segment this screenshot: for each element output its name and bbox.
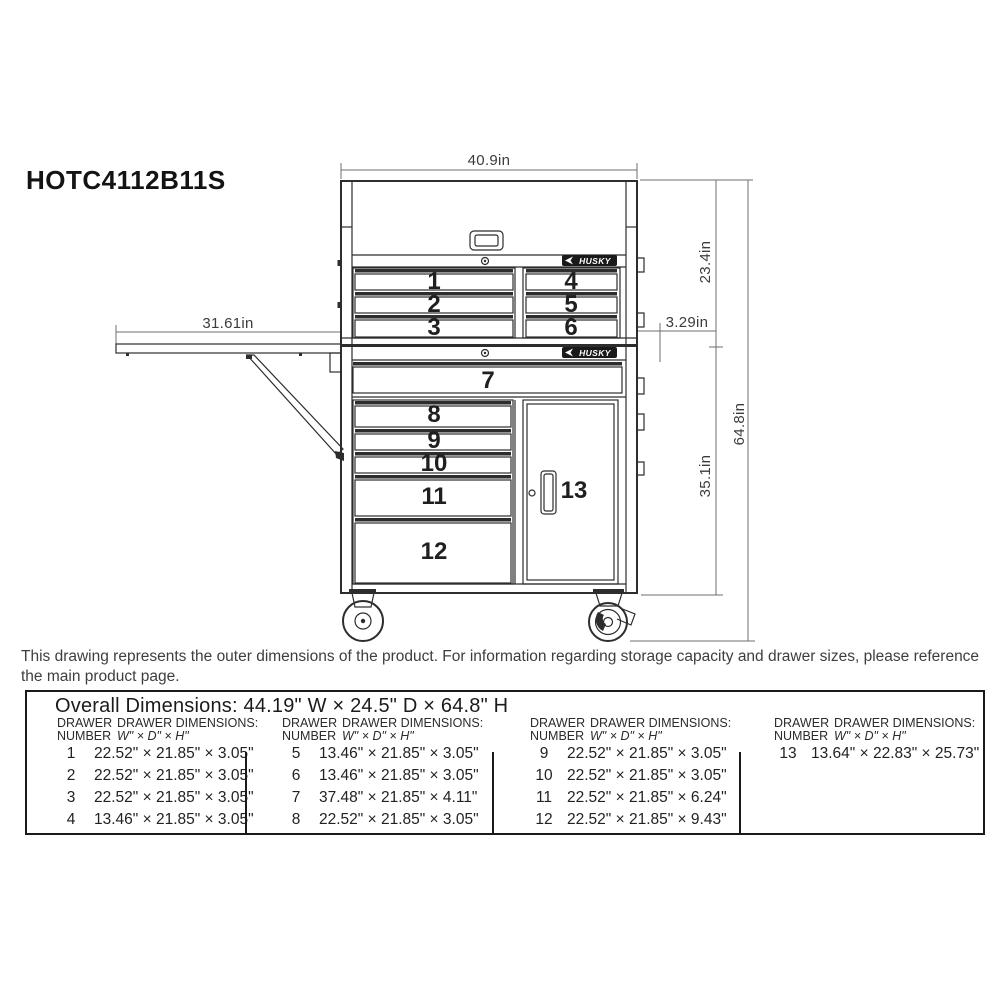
casters bbox=[343, 589, 635, 641]
drawer-number-cell: 12 bbox=[530, 811, 558, 829]
overall-dimensions: Overall Dimensions: 44.19" W × 24.5" D ×… bbox=[55, 695, 508, 718]
table-group-1: DRAWER NUMBER DRAWER DIMENSIONS: W" × D"… bbox=[57, 717, 258, 831]
header-number: NUMBER bbox=[282, 730, 342, 743]
drawer-label-13: 13 bbox=[561, 477, 588, 504]
technical-drawing: 40.9in 31.61in 23.4in 3.29in 35.1in 6 bbox=[0, 0, 1000, 1000]
drawer-dims-cell: 22.52" × 21.85" × 3.05" bbox=[319, 811, 479, 829]
drawer-number-cell: 1 bbox=[57, 745, 85, 763]
bottom-cabinet: HUSKY 7 8 9 10 11 12 bbox=[341, 346, 644, 593]
drawer-number-cell: 3 bbox=[57, 789, 85, 807]
husky-logo-text: HUSKY bbox=[579, 256, 612, 266]
dim-shelf-width: 31.61in bbox=[202, 315, 253, 332]
drawer-number-cell: 11 bbox=[530, 789, 558, 807]
husky-logo: HUSKY bbox=[562, 347, 617, 358]
product-dimension-sheet: HOTC4112B11S 40.9in 31.61in 23.4in 3.29i… bbox=[0, 0, 1000, 1000]
header-wdh: W" × D" × H" bbox=[342, 730, 483, 743]
dim-chest-height: 23.4in bbox=[697, 241, 714, 284]
dim-side-offset: 3.29in bbox=[666, 314, 709, 331]
table-header: DRAWER NUMBER DRAWER DIMENSIONS: W" × D"… bbox=[282, 717, 483, 743]
dimensions-table: Overall Dimensions: 44.19" W × 24.5" D ×… bbox=[25, 690, 985, 835]
lid-latch-handle bbox=[470, 231, 503, 250]
header-wdh: W" × D" × H" bbox=[834, 730, 975, 743]
drawer-number-cell: 10 bbox=[530, 767, 558, 785]
table-row: 222.52" × 21.85" × 3.05" bbox=[57, 765, 258, 787]
table-row: 613.46" × 21.85" × 3.05" bbox=[282, 765, 483, 787]
top-chest: HUSKY 1 2 3 4 5 6 bbox=[338, 181, 645, 345]
dim-chest-width: 40.9in bbox=[468, 152, 511, 169]
table-divider bbox=[492, 752, 494, 833]
drawer-dims-cell: 22.52" × 21.85" × 3.05" bbox=[567, 767, 727, 785]
dim-cabinet-height: 35.1in bbox=[697, 455, 714, 498]
drawer-label-11: 11 bbox=[421, 483, 446, 510]
table-row: 122.52" × 21.85" × 3.05" bbox=[57, 743, 258, 765]
table-divider bbox=[739, 752, 741, 833]
right-caster bbox=[589, 589, 635, 641]
table-header: DRAWER NUMBER DRAWER DIMENSIONS: W" × D"… bbox=[774, 717, 979, 743]
header-wdh: W" × D" × H" bbox=[590, 730, 731, 743]
drawer-dims-cell: 13.46" × 21.85" × 3.05" bbox=[94, 811, 254, 829]
table-row: 1222.52" × 21.85" × 9.43" bbox=[530, 809, 731, 831]
table-group-2: DRAWER NUMBER DRAWER DIMENSIONS: W" × D"… bbox=[282, 717, 483, 831]
table-divider bbox=[245, 752, 247, 833]
drawer-number-cell: 5 bbox=[282, 745, 310, 763]
disclaimer-note: This drawing represents the outer dimens… bbox=[21, 647, 989, 686]
side-shelf bbox=[116, 344, 344, 461]
left-caster bbox=[343, 589, 383, 641]
dim-overall-height: 64.8in bbox=[731, 403, 748, 446]
header-number: NUMBER bbox=[530, 730, 590, 743]
header-number: NUMBER bbox=[774, 730, 834, 743]
table-group-4: DRAWER NUMBER DRAWER DIMENSIONS: W" × D"… bbox=[774, 717, 979, 765]
drawer-number-cell: 9 bbox=[530, 745, 558, 763]
table-header: DRAWER NUMBER DRAWER DIMENSIONS: W" × D"… bbox=[57, 717, 258, 743]
drawer-number-cell: 7 bbox=[282, 789, 310, 807]
table-row: 822.52" × 21.85" × 3.05" bbox=[282, 809, 483, 831]
drawer-dims-cell: 22.52" × 21.85" × 3.05" bbox=[567, 745, 727, 763]
door-handle bbox=[541, 471, 556, 514]
keyhole-icon bbox=[529, 490, 535, 496]
husky-logo: HUSKY bbox=[562, 255, 617, 266]
side-handle-bracket bbox=[637, 378, 644, 394]
drawer-label-8: 8 bbox=[427, 401, 440, 428]
cabinet-door: 13 bbox=[523, 400, 618, 584]
side-handle-bracket bbox=[637, 414, 644, 430]
husky-logo-text: HUSKY bbox=[579, 348, 612, 358]
drawer-label-3: 3 bbox=[427, 314, 440, 341]
drawer-number-cell: 2 bbox=[57, 767, 85, 785]
side-handle-bracket bbox=[637, 313, 644, 327]
cabinet-lock-icon bbox=[482, 350, 489, 357]
table-row: 1122.52" × 21.85" × 6.24" bbox=[530, 787, 731, 809]
table-row: 322.52" × 21.85" × 3.05" bbox=[57, 787, 258, 809]
drawer-dims-cell: 22.52" × 21.85" × 3.05" bbox=[94, 789, 254, 807]
drawer-number-cell: 8 bbox=[282, 811, 310, 829]
chest-lock-icon bbox=[482, 258, 489, 265]
drawer-dims-cell: 13.46" × 21.85" × 3.05" bbox=[319, 767, 479, 785]
table-row: 413.46" × 21.85" × 3.05" bbox=[57, 809, 258, 831]
drawer-dims-cell: 37.48" × 21.85" × 4.11" bbox=[319, 789, 477, 807]
side-handle-bracket bbox=[637, 258, 644, 272]
drawer-number-cell: 13 bbox=[774, 745, 802, 763]
table-header: DRAWER NUMBER DRAWER DIMENSIONS: W" × D"… bbox=[530, 717, 731, 743]
side-handle-bracket bbox=[637, 462, 644, 475]
drawer-label-10: 10 bbox=[421, 450, 448, 477]
drawer-dims-cell: 22.52" × 21.85" × 6.24" bbox=[567, 789, 727, 807]
drawer-label-12: 12 bbox=[421, 538, 448, 565]
header-wdh: W" × D" × H" bbox=[117, 730, 258, 743]
drawer-label-6: 6 bbox=[564, 314, 577, 341]
drawer-dims-cell: 13.64" × 22.83" × 25.73" bbox=[811, 745, 979, 763]
drawer-dims-cell: 22.52" × 21.85" × 3.05" bbox=[94, 767, 254, 785]
drawer-dims-cell: 13.46" × 21.85" × 3.05" bbox=[319, 745, 479, 763]
table-row: 737.48" × 21.85" × 4.11" bbox=[282, 787, 483, 809]
drawer-label-7: 7 bbox=[481, 367, 494, 394]
header-number: NUMBER bbox=[57, 730, 117, 743]
table-row: 513.46" × 21.85" × 3.05" bbox=[282, 743, 483, 765]
table-row: 1022.52" × 21.85" × 3.05" bbox=[530, 765, 731, 787]
table-row: 922.52" × 21.85" × 3.05" bbox=[530, 743, 731, 765]
drawer-dims-cell: 22.52" × 21.85" × 3.05" bbox=[94, 745, 254, 763]
drawer-number-cell: 4 bbox=[57, 811, 85, 829]
table-row: 1313.64" × 22.83" × 25.73" bbox=[774, 743, 979, 765]
drawer-number-cell: 6 bbox=[282, 767, 310, 785]
table-group-3: DRAWER NUMBER DRAWER DIMENSIONS: W" × D"… bbox=[530, 717, 731, 831]
drawer-dims-cell: 22.52" × 21.85" × 9.43" bbox=[567, 811, 727, 829]
